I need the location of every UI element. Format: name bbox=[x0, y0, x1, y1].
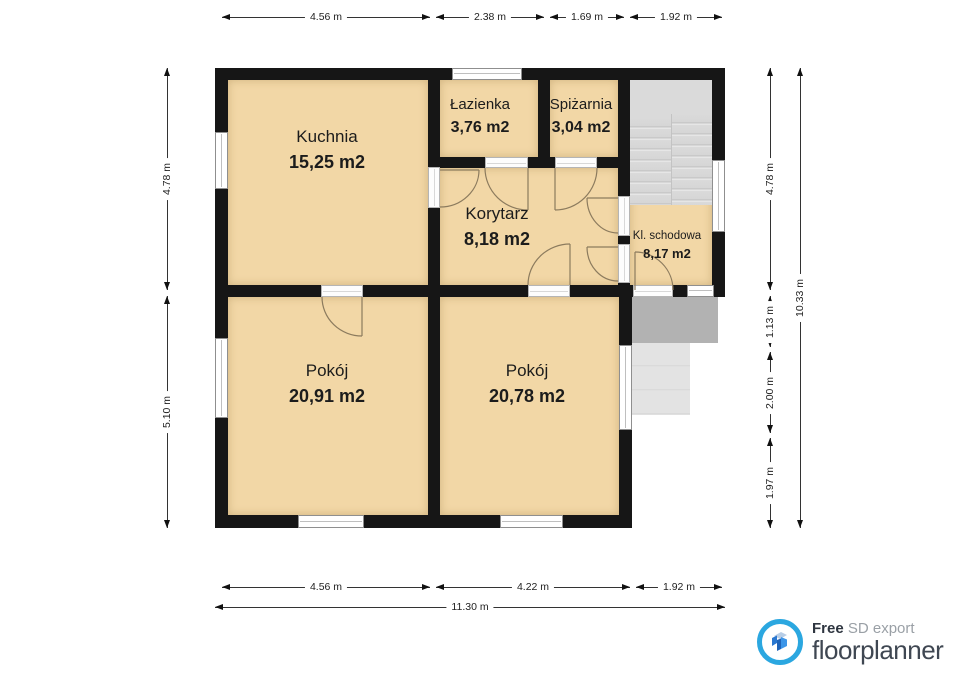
room-name: Korytarz bbox=[464, 201, 530, 227]
floorplan-canvas: Kuchnia 15,25 m2 Łazienka 3,76 m2 Spiżar… bbox=[0, 0, 960, 679]
floorplanner-logo-icon bbox=[757, 619, 803, 665]
dimension-right-total: 10.33 m bbox=[794, 68, 806, 528]
room-area: 3,76 m2 bbox=[450, 117, 510, 139]
label-kl-schodowa: Kl. schodowa 8,17 m2 bbox=[633, 228, 701, 263]
dimension-left-2: 5.10 m bbox=[161, 296, 173, 528]
room-area: 20,91 m2 bbox=[289, 384, 365, 409]
room-name: Kuchnia bbox=[289, 124, 365, 150]
floorplanner-logo[interactable]: Free SD export floorplanner bbox=[757, 619, 943, 665]
door-korytarz-pokoj bbox=[528, 285, 570, 297]
door-kuchnia-pokoj bbox=[321, 285, 363, 297]
staircase bbox=[630, 80, 712, 205]
window-entry-sidelight bbox=[687, 285, 714, 297]
stair-divider bbox=[671, 114, 672, 205]
door-korytarz-kl-schodowa bbox=[618, 244, 630, 283]
room-name: Pokój bbox=[289, 358, 365, 384]
dimension-bottom-2: 4.22 m bbox=[436, 581, 630, 593]
dimension-bottom-3: 1.92 m bbox=[636, 581, 722, 593]
label-pokoj-right: Pokój 20,78 m2 bbox=[489, 358, 565, 409]
wall-lazienka-spizarnia bbox=[538, 80, 550, 157]
dimension-right-2: 1.13 m bbox=[764, 296, 776, 347]
door-kuchnia-korytarz bbox=[428, 167, 440, 208]
wall-exterior-bottom bbox=[215, 515, 632, 528]
room-area: 20,78 m2 bbox=[489, 384, 565, 409]
label-lazienka: Łazienka 3,76 m2 bbox=[450, 94, 510, 139]
exterior-steps bbox=[632, 343, 690, 415]
door-entry bbox=[633, 285, 673, 297]
dimension-top-3: 1.69 m bbox=[550, 11, 624, 23]
room-name: Spiżarnia bbox=[550, 94, 613, 117]
wall-interior-hall-horizontal bbox=[428, 157, 630, 168]
window-right-staircase bbox=[712, 160, 725, 232]
dimension-right-1: 4.78 m bbox=[764, 68, 776, 290]
exterior-porch bbox=[632, 297, 718, 343]
floorplanner-logo-text: Free SD export floorplanner bbox=[812, 620, 943, 665]
dimension-top-4: 1.92 m bbox=[630, 11, 722, 23]
room-area: 15,25 m2 bbox=[289, 150, 365, 175]
window-bottom-pokoj-left bbox=[298, 515, 364, 528]
room-name: Pokój bbox=[489, 358, 565, 384]
room-area: 8,18 m2 bbox=[464, 227, 530, 252]
label-spizarnia: Spiżarnia 3,04 m2 bbox=[550, 94, 613, 139]
stair-flight-right bbox=[671, 114, 712, 205]
dimension-top-2: 2.38 m bbox=[436, 11, 544, 23]
logo-brand: floorplanner bbox=[812, 637, 943, 664]
room-area: 8,17 m2 bbox=[633, 245, 701, 263]
dimension-right-4: 1.97 m bbox=[764, 438, 776, 528]
label-kuchnia: Kuchnia 15,25 m2 bbox=[289, 124, 365, 175]
stair-flight-left bbox=[630, 118, 671, 205]
door-lazienka bbox=[485, 157, 528, 168]
window-left-pokoj bbox=[215, 338, 228, 418]
door-korytarz-staircase bbox=[618, 196, 630, 236]
room-name: Łazienka bbox=[450, 94, 510, 117]
door-spizarnia bbox=[555, 157, 597, 168]
room-name: Kl. schodowa bbox=[633, 228, 701, 245]
window-left-kuchnia bbox=[215, 132, 228, 189]
label-pokoj-left: Pokój 20,91 m2 bbox=[289, 358, 365, 409]
room-area: 3,04 m2 bbox=[550, 117, 613, 139]
window-bottom-pokoj-right bbox=[500, 515, 563, 528]
dimension-right-3: 2.00 m bbox=[764, 352, 776, 433]
house-cube-icon bbox=[768, 630, 792, 654]
room-area-kuchnia bbox=[228, 80, 428, 285]
window-top-lazienka bbox=[452, 68, 522, 80]
wall-interior-vertical-main bbox=[428, 80, 440, 515]
dimension-bottom-1: 4.56 m bbox=[222, 581, 430, 593]
label-korytarz: Korytarz 8,18 m2 bbox=[464, 201, 530, 252]
dimension-left-1: 4.78 m bbox=[161, 68, 173, 290]
dimension-top-1: 4.56 m bbox=[222, 11, 430, 23]
window-right-pokoj bbox=[619, 345, 632, 430]
dimension-bottom-total: 11.30 m bbox=[215, 601, 725, 613]
